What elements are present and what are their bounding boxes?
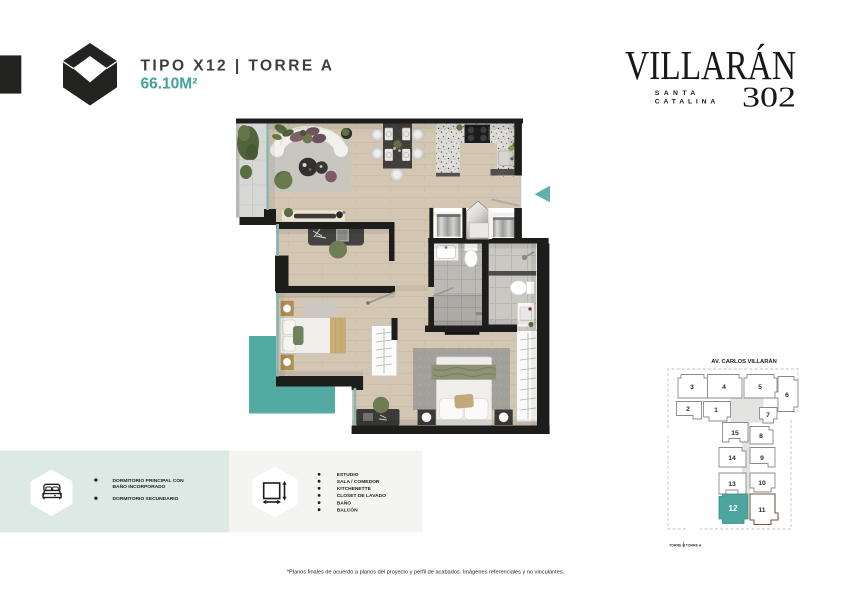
svg-text:BAÑO INCORPORADO: BAÑO INCORPORADO: [113, 483, 166, 490]
svg-text:TORRE A: TORRE A: [686, 544, 702, 548]
svg-text:KITCHENETTE: KITCHENETTE: [337, 486, 372, 492]
svg-text:TIPO X12 | TORRE A: TIPO X12 | TORRE A: [141, 58, 333, 75]
svg-text:DORMITORIO PRINCIPAL CON: DORMITORIO PRINCIPAL CON: [113, 478, 185, 484]
svg-text:6: 6: [785, 392, 789, 399]
svg-text:5: 5: [758, 384, 762, 391]
svg-text:13: 13: [728, 481, 736, 488]
svg-text:*Planos finales de acuerdo a p: *Planos finales de acuerdo a planos del …: [287, 570, 565, 576]
svg-text:66.10M²: 66.10M²: [141, 76, 198, 93]
svg-text:AV. CARLOS VILLARÁN: AV. CARLOS VILLARÁN: [711, 358, 777, 365]
svg-text:4: 4: [722, 384, 726, 391]
svg-text:DORMITORIO SECUNDARIO: DORMITORIO SECUNDARIO: [113, 496, 179, 502]
svg-text:14: 14: [728, 455, 736, 462]
svg-text:15: 15: [731, 430, 739, 437]
svg-text:9: 9: [760, 455, 764, 462]
svg-text:SALA / COMEDOR: SALA / COMEDOR: [337, 479, 380, 485]
svg-text:ESTUDIO: ESTUDIO: [337, 472, 359, 478]
svg-text:12: 12: [729, 504, 738, 513]
svg-text:302: 302: [742, 82, 796, 114]
svg-text:8: 8: [759, 433, 763, 440]
svg-text:10: 10: [758, 480, 766, 487]
svg-text:3: 3: [690, 384, 694, 391]
svg-text:BAÑO: BAÑO: [337, 499, 352, 506]
svg-text:2: 2: [686, 406, 690, 413]
svg-text:TORRE B: TORRE B: [669, 544, 686, 548]
svg-text:CLOSET DE LAVADO: CLOSET DE LAVADO: [337, 493, 386, 499]
svg-text:11: 11: [758, 507, 765, 514]
svg-text:7: 7: [766, 412, 770, 419]
svg-text:1: 1: [714, 407, 718, 414]
